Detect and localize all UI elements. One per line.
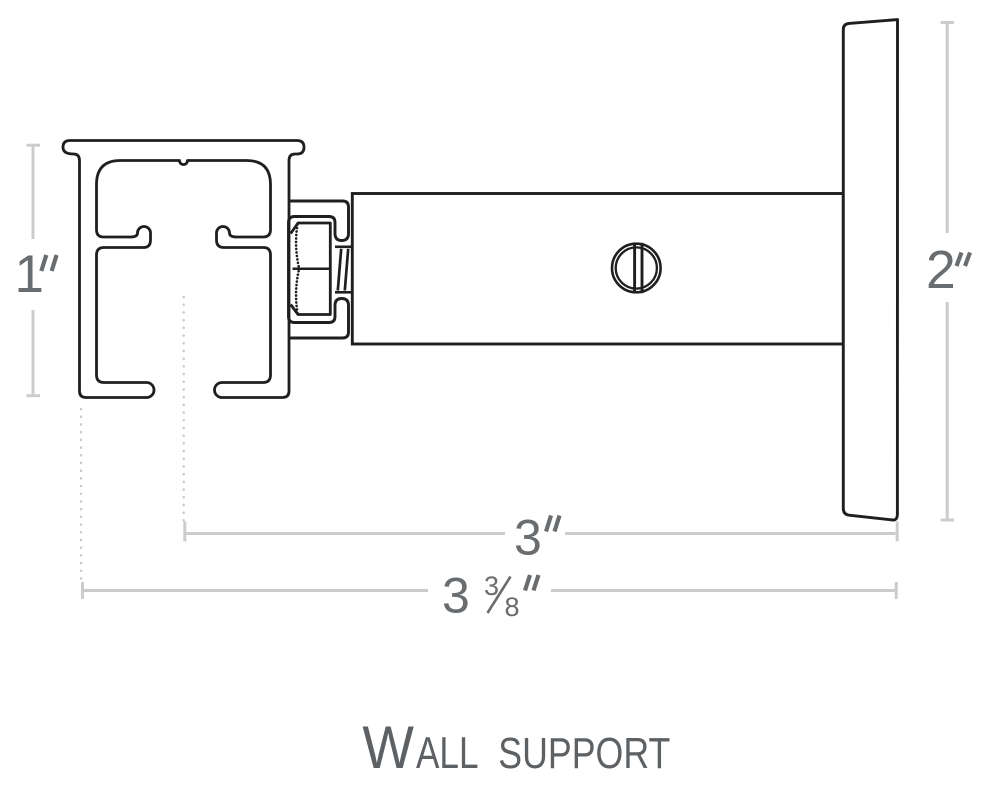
svg-text:SUPPORT: SUPPORT <box>498 730 670 778</box>
svg-text:1: 1 <box>15 245 44 304</box>
svg-text:3: 3 <box>514 510 542 566</box>
svg-text:W: W <box>362 715 414 782</box>
svg-text:ALL: ALL <box>416 729 479 778</box>
svg-text:8: 8 <box>505 592 520 622</box>
svg-text:2: 2 <box>926 241 956 300</box>
svg-text:3: 3 <box>442 568 470 624</box>
